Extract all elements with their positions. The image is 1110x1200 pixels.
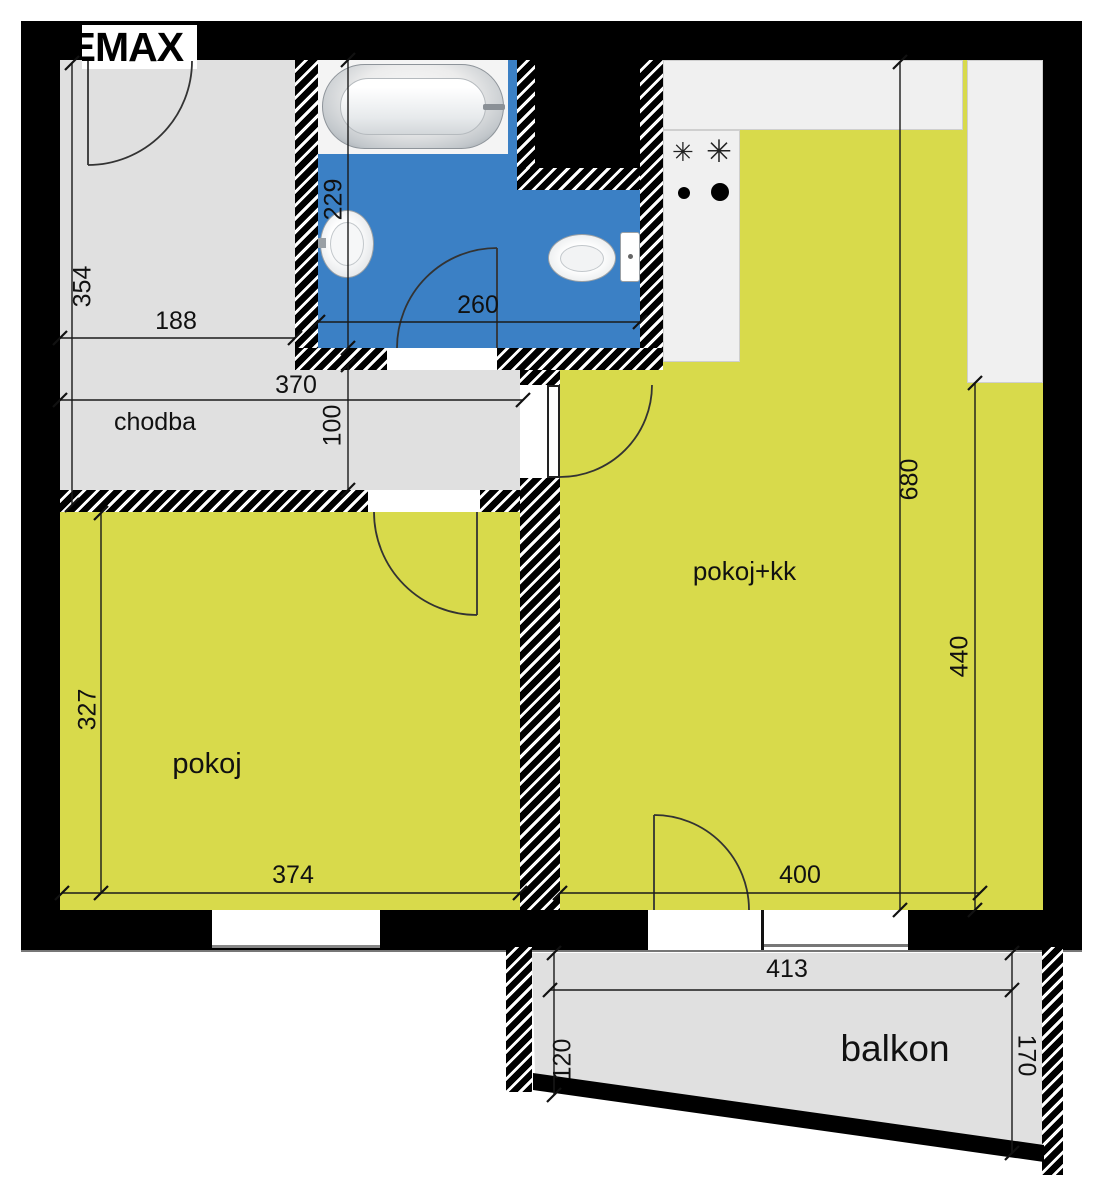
dim-label-170: 170 — [1013, 1014, 1040, 1098]
balcony-wall-left — [506, 947, 532, 1092]
kitchen-counter-top — [663, 60, 963, 130]
bathroom-door-opening — [387, 348, 497, 370]
dim-label-260: 260 — [436, 292, 520, 319]
chodba-pokojkk-door-leaf — [547, 385, 560, 478]
stove-burner-star-icon: ✳ — [672, 138, 694, 166]
room-pokoj-floor — [60, 512, 520, 910]
bathroom-wall-right — [640, 60, 663, 370]
dim-label-120: 120 — [550, 1018, 577, 1102]
room-label-pokoj-kk: pokoj+kk — [672, 556, 817, 587]
pokoj-window-sill — [212, 945, 380, 948]
wall-left — [21, 21, 60, 950]
wall-bottom — [21, 910, 1082, 950]
floor-plan: ✳ ✳ E/MAX — [0, 0, 1110, 1200]
dim-label-440: 440 — [947, 615, 974, 699]
shaft — [535, 60, 640, 168]
wall-chodba-pokoj — [60, 490, 560, 512]
wall-bottom-edge-line — [21, 950, 1082, 952]
dim-label-100: 100 — [320, 384, 347, 468]
pokoj-window — [212, 910, 380, 947]
dim-label-400: 400 — [758, 862, 842, 889]
room-label-pokoj: pokoj — [152, 748, 262, 781]
stove-burner-dot-icon — [711, 183, 729, 201]
dim-label-413: 413 — [745, 956, 829, 983]
dim-label-188: 188 — [134, 308, 218, 335]
wall-right — [1043, 21, 1082, 950]
bathroom-wall-left — [295, 60, 318, 370]
dim-label-374: 374 — [251, 862, 335, 889]
dim-label-354: 354 — [70, 245, 97, 329]
room-label-balkon: balkon — [795, 1028, 995, 1070]
balcony-wall-right — [1042, 947, 1063, 1175]
dim-label-680: 680 — [897, 438, 924, 522]
balcony-railing — [533, 1073, 1044, 1162]
remax-logo-clipped-part: E/ — [82, 25, 95, 69]
remax-logo: E/MAX — [82, 25, 197, 69]
room-label-chodba: chodba — [100, 408, 210, 437]
stove-burner-star-icon: ✳ — [706, 138, 732, 166]
toilet-bowl-inner — [560, 245, 604, 272]
dim-label-229: 229 — [321, 158, 348, 242]
stove-burner-dot-icon — [678, 187, 690, 199]
balcony-window-sill — [764, 944, 908, 947]
bathtub-inner — [340, 78, 486, 135]
toilet-button-icon — [628, 254, 633, 259]
pokoj-door-opening — [368, 490, 480, 512]
dim-label-327: 327 — [75, 668, 102, 752]
bathtub-faucet-icon — [483, 104, 505, 110]
kitchen-counter-right — [967, 60, 1043, 383]
remax-logo-text: MAX — [95, 25, 183, 69]
